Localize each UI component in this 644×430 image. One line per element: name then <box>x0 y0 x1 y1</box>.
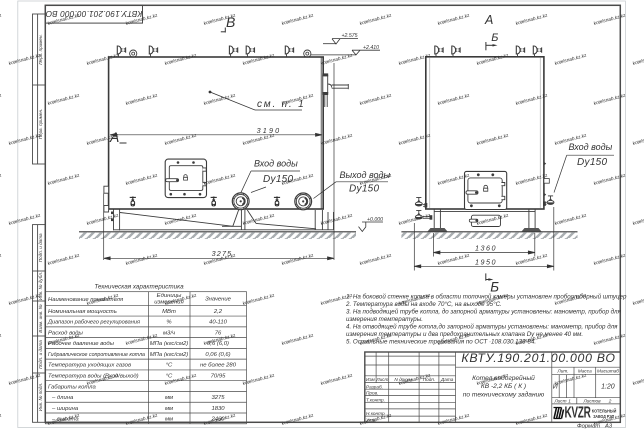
svg-text:КОТЕЛЬНЫЙ: КОТЕЛЬНЫЙ <box>592 408 617 413</box>
svg-text:kotelsnab.kz.kz: kotelsnab.kz.kz <box>515 252 549 266</box>
svg-text:Б: Б <box>491 32 498 44</box>
svg-text:kotelsnab.kz.kz: kotelsnab.kz.kz <box>0 412 3 426</box>
svg-text:Вход воды: Вход воды <box>569 142 613 152</box>
svg-text:Листов: Листов <box>582 399 601 404</box>
svg-text:2,2: 2,2 <box>213 309 223 315</box>
svg-text:kotelsnab.kz.kz: kotelsnab.kz.kz <box>47 252 81 266</box>
svg-text:Диапазон рабочего регулировани: Диапазон рабочего регулирования <box>47 320 141 326</box>
svg-text:3275: 3275 <box>211 395 225 401</box>
svg-text:Б: Б <box>490 280 499 295</box>
svg-text:kotelsnab.kz.kz: kotelsnab.kz.kz <box>632 52 644 66</box>
svg-text:– длина: – длина <box>51 395 74 401</box>
svg-text:kotelsnab.kz.kz: kotelsnab.kz.kz <box>0 332 3 346</box>
svg-text:4. На отводящей трубе котла,д: 4. На отводящей трубе котла,до запорной … <box>346 324 618 331</box>
svg-text:70/95: 70/95 <box>211 374 226 380</box>
svg-text:kotelsnab.kz.kz: kotelsnab.kz.kz <box>281 12 315 26</box>
svg-text:Номинальная мощность: Номинальная мощность <box>48 309 117 315</box>
svg-text:kotelsnab.kz.kz: kotelsnab.kz.kz <box>437 252 471 266</box>
svg-text:1950: 1950 <box>475 257 497 266</box>
svg-text:kotelsnab.kz.kz: kotelsnab.kz.kz <box>125 252 159 266</box>
svg-text:kotelsnab.kz.kz: kotelsnab.kz.kz <box>8 292 42 306</box>
svg-text:kotelsnab.kz.kz: kotelsnab.kz.kz <box>593 12 627 26</box>
svg-text:Подп. и дата: Подп. и дата <box>38 233 43 262</box>
svg-text:Dy150: Dy150 <box>577 157 608 168</box>
svg-text:Пров.: Пров. <box>366 391 378 396</box>
svg-text:измерения температуры.: измерения температуры. <box>346 316 423 323</box>
svg-text:kotelsnab.kz.kz: kotelsnab.kz.kz <box>632 132 644 146</box>
svg-text:kotelsnab.kz.kz: kotelsnab.kz.kz <box>515 12 549 26</box>
svg-text:kotelsnab.kz.kz: kotelsnab.kz.kz <box>281 252 315 266</box>
svg-text:kotelsnab.kz.kz: kotelsnab.kz.kz <box>86 212 120 226</box>
svg-text:kotelsnab.kz.kz: kotelsnab.kz.kz <box>320 372 354 386</box>
svg-text:м3/ч: м3/ч <box>163 330 175 336</box>
svg-text:kotelsnab.kz.kz: kotelsnab.kz.kz <box>203 412 237 426</box>
svg-text:kotelsnab.kz.kz: kotelsnab.kz.kz <box>242 372 276 386</box>
svg-text:40-110: 40-110 <box>209 320 228 326</box>
svg-text:1360: 1360 <box>475 244 497 253</box>
svg-text:+2.575: +2.575 <box>342 33 358 39</box>
svg-text:kotelsnab.kz.kz: kotelsnab.kz.kz <box>398 212 432 226</box>
svg-text:kotelsnab.kz.kz: kotelsnab.kz.kz <box>125 412 159 426</box>
svg-text:3. На подводящей трубе котла,: 3. На подводящей трубе котла, до запорно… <box>346 308 622 315</box>
svg-text:по техническому заданию: по техническому заданию <box>463 390 545 398</box>
svg-text:kotelsnab.kz.kz: kotelsnab.kz.kz <box>359 12 393 26</box>
svg-text:kotelsnab.kz.kz: kotelsnab.kz.kz <box>8 132 42 146</box>
svg-text:– ширина: – ширина <box>51 406 79 412</box>
svg-text:Разраб.: Разраб. <box>366 384 383 389</box>
svg-text:+2.410: +2.410 <box>363 45 379 51</box>
svg-text:Гидравлическое сопротивление к: Гидравлическое сопротивление котла <box>48 352 146 358</box>
svg-text:мм: мм <box>165 395 173 401</box>
svg-text:Вход воды: Вход воды <box>254 159 298 169</box>
svg-text:kotelsnab.kz.kz: kotelsnab.kz.kz <box>242 292 276 306</box>
svg-text:kotelsnab.kz.kz: kotelsnab.kz.kz <box>0 252 3 266</box>
svg-text:kotelsnab.kz.kz: kotelsnab.kz.kz <box>359 92 393 106</box>
svg-text:Масштаб: Масштаб <box>597 369 619 374</box>
svg-text:1: 1 <box>568 399 571 404</box>
svg-text:Температура уходящих газов: Температура уходящих газов <box>48 363 131 369</box>
svg-text:мм: мм <box>165 406 173 412</box>
svg-text:А: А <box>484 13 493 27</box>
svg-text:°С: °С <box>166 363 173 369</box>
svg-text:Лист: Лист <box>553 399 566 404</box>
svg-text:не более 280: не более 280 <box>200 363 237 369</box>
svg-text:kotelsnab.kz.kz: kotelsnab.kz.kz <box>437 12 471 26</box>
svg-text:Инв. № подл.: Инв. № подл. <box>38 383 43 412</box>
svg-text:kotelsnab.kz.kz: kotelsnab.kz.kz <box>47 92 81 106</box>
svg-text:kotelsnab.kz.kz: kotelsnab.kz.kz <box>0 92 3 106</box>
svg-text:KVZR: KVZR <box>565 405 592 422</box>
svg-text:kotelsnab.kz.kz: kotelsnab.kz.kz <box>593 92 627 106</box>
svg-text:kotelsnab.kz.kz: kotelsnab.kz.kz <box>632 372 644 386</box>
svg-text:kotelsnab.kz.kz: kotelsnab.kz.kz <box>47 172 81 186</box>
svg-text:КВТУ.190.201.00.000 ВО: КВТУ.190.201.00.000 ВО <box>45 9 142 18</box>
svg-text:1:20: 1:20 <box>601 384 615 391</box>
svg-text:Значение: Значение <box>205 297 232 303</box>
svg-text:МПа (кгс/см2): МПа (кгс/см2) <box>150 341 189 347</box>
svg-text:kotelsnab.kz.kz: kotelsnab.kz.kz <box>593 252 627 266</box>
svg-text:Температура воды (Вход/выход): Температура воды (Вход/выход) <box>48 374 139 380</box>
svg-text:°С: °С <box>166 374 173 380</box>
svg-text:kotelsnab.kz.kz: kotelsnab.kz.kz <box>320 212 354 226</box>
svg-text:МПа (кгс/см2): МПа (кгс/см2) <box>150 352 189 358</box>
svg-text:А3: А3 <box>604 424 613 430</box>
svg-text:1830: 1830 <box>211 406 225 412</box>
svg-text:2: 2 <box>608 399 612 404</box>
svg-text:kotelsnab.kz.kz: kotelsnab.kz.kz <box>0 172 3 186</box>
svg-text:КВТУ.190.201.00.000 ВО: КВТУ.190.201.00.000 ВО <box>461 351 615 365</box>
svg-text:+0.000: +0.000 <box>367 217 383 223</box>
svg-text:Техническая характеристика: Техническая характеристика <box>94 283 184 290</box>
svg-text:Лист: Лист <box>375 377 388 382</box>
svg-text:kotelsnab.kz.kz: kotelsnab.kz.kz <box>632 292 644 306</box>
svg-text:Подп. и дата: Подп. и дата <box>38 340 43 369</box>
svg-text:kotelsnab.kz.kz: kotelsnab.kz.kz <box>8 372 42 386</box>
svg-text:kotelsnab.kz.kz: kotelsnab.kz.kz <box>593 172 627 186</box>
svg-text:Дата: Дата <box>440 377 454 382</box>
svg-text:мм: мм <box>165 417 173 423</box>
svg-text:kotelsnab.kz.kz: kotelsnab.kz.kz <box>554 52 588 66</box>
svg-text:kotelsnab.kz.kz: kotelsnab.kz.kz <box>0 12 3 26</box>
svg-text:0,06 (0,6): 0,06 (0,6) <box>205 352 230 358</box>
svg-text:Перв. примен.: Перв. примен. <box>38 34 43 65</box>
svg-text:kotelsnab.kz.kz: kotelsnab.kz.kz <box>164 212 198 226</box>
svg-text:76: 76 <box>215 330 222 336</box>
svg-text:%: % <box>166 320 171 326</box>
svg-text:kotelsnab.kz.kz: kotelsnab.kz.kz <box>359 252 393 266</box>
svg-text:Изм: Изм <box>366 377 375 382</box>
svg-text:kotelsnab.kz.kz: kotelsnab.kz.kz <box>554 212 588 226</box>
svg-text:kotelsnab.kz.kz: kotelsnab.kz.kz <box>281 332 315 346</box>
svg-text:МВт: МВт <box>162 309 176 315</box>
svg-text:kotelsnab.kz.kz: kotelsnab.kz.kz <box>320 132 354 146</box>
svg-text:Лит.: Лит. <box>557 369 569 374</box>
svg-text:kotelsnab.kz.kz: kotelsnab.kz.kz <box>632 212 644 226</box>
svg-text:3190: 3190 <box>257 126 282 135</box>
svg-text:kotelsnab.kz.kz: kotelsnab.kz.kz <box>281 412 315 426</box>
svg-text:kotelsnab.kz.kz: kotelsnab.kz.kz <box>593 332 627 346</box>
svg-text:Взам. инв. №: Взам. инв. № <box>38 304 43 332</box>
svg-text:Т.контр.: Т.контр. <box>366 397 385 402</box>
svg-text:kotelsnab.kz.kz: kotelsnab.kz.kz <box>8 52 42 66</box>
